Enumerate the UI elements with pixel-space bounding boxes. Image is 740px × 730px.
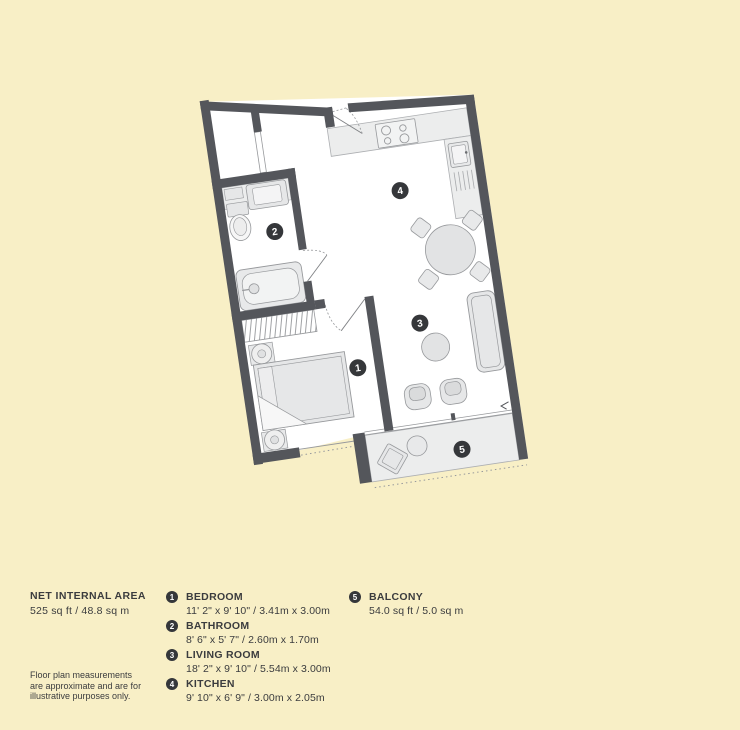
floor-plan-drawing: 1 2 3 4 5 [0,0,740,560]
room-number-badge: 2 [166,620,178,632]
room-number-badge: 5 [349,591,361,603]
room-name: LIVING ROOM [186,649,331,661]
room-dimensions: 54.0 sq ft / 5.0 sq m [369,605,463,617]
disclaimer-line: are approximate and are for [30,681,141,692]
disclaimer-line: illustrative purposes only. [30,691,141,702]
legend-item-balcony: 5 BALCONY 54.0 sq ft / 5.0 sq m [349,591,463,617]
room-name: KITCHEN [186,678,325,690]
legend-item-kitchen: 4 KITCHEN 9' 10" x 6' 9" / 3.00m x 2.05m [166,678,325,704]
room-dimensions: 11' 2" x 9' 10" / 3.41m x 3.00m [186,605,330,617]
legend-item-bedroom: 1 BEDROOM 11' 2" x 9' 10" / 3.41m x 3.00… [166,591,330,617]
legend-item-living-room: 3 LIVING ROOM 18' 2" x 9' 10" / 5.54m x … [166,649,331,675]
disclaimer-line: Floor plan measurements [30,670,141,681]
net-area-value: 525 sq ft / 48.8 sq m [30,605,146,617]
room-name: BALCONY [369,591,463,603]
room-dimensions: 18' 2" x 9' 10" / 5.54m x 3.00m [186,663,331,675]
room-dimensions: 9' 10" x 6' 9" / 3.00m x 2.05m [186,692,325,704]
disclaimer: Floor plan measurements are approximate … [30,670,141,702]
net-internal-area: NET INTERNAL AREA 525 sq ft / 48.8 sq m [30,590,146,617]
legend-item-bathroom: 2 BATHROOM 8' 6" x 5' 7" / 2.60m x 1.70m [166,620,319,646]
double-bed [253,352,354,431]
room-number-badge: 4 [166,678,178,690]
room-name: BATHROOM [186,620,319,632]
floorplan-page: 1 2 3 4 5 [0,0,740,730]
room-number-badge: 3 [166,649,178,661]
armchair [439,377,468,406]
net-area-title: NET INTERNAL AREA [30,590,146,602]
bathroom-shelf [224,187,243,201]
armchair [403,382,432,411]
room-number-badge: 1 [166,591,178,603]
washbasin-icon [246,179,289,210]
nightstand-lamp [248,342,275,365]
room-dimensions: 8' 6" x 5' 7" / 2.60m x 1.70m [186,634,319,646]
room-name: BEDROOM [186,591,330,603]
kitchen-sink-icon [448,141,471,168]
